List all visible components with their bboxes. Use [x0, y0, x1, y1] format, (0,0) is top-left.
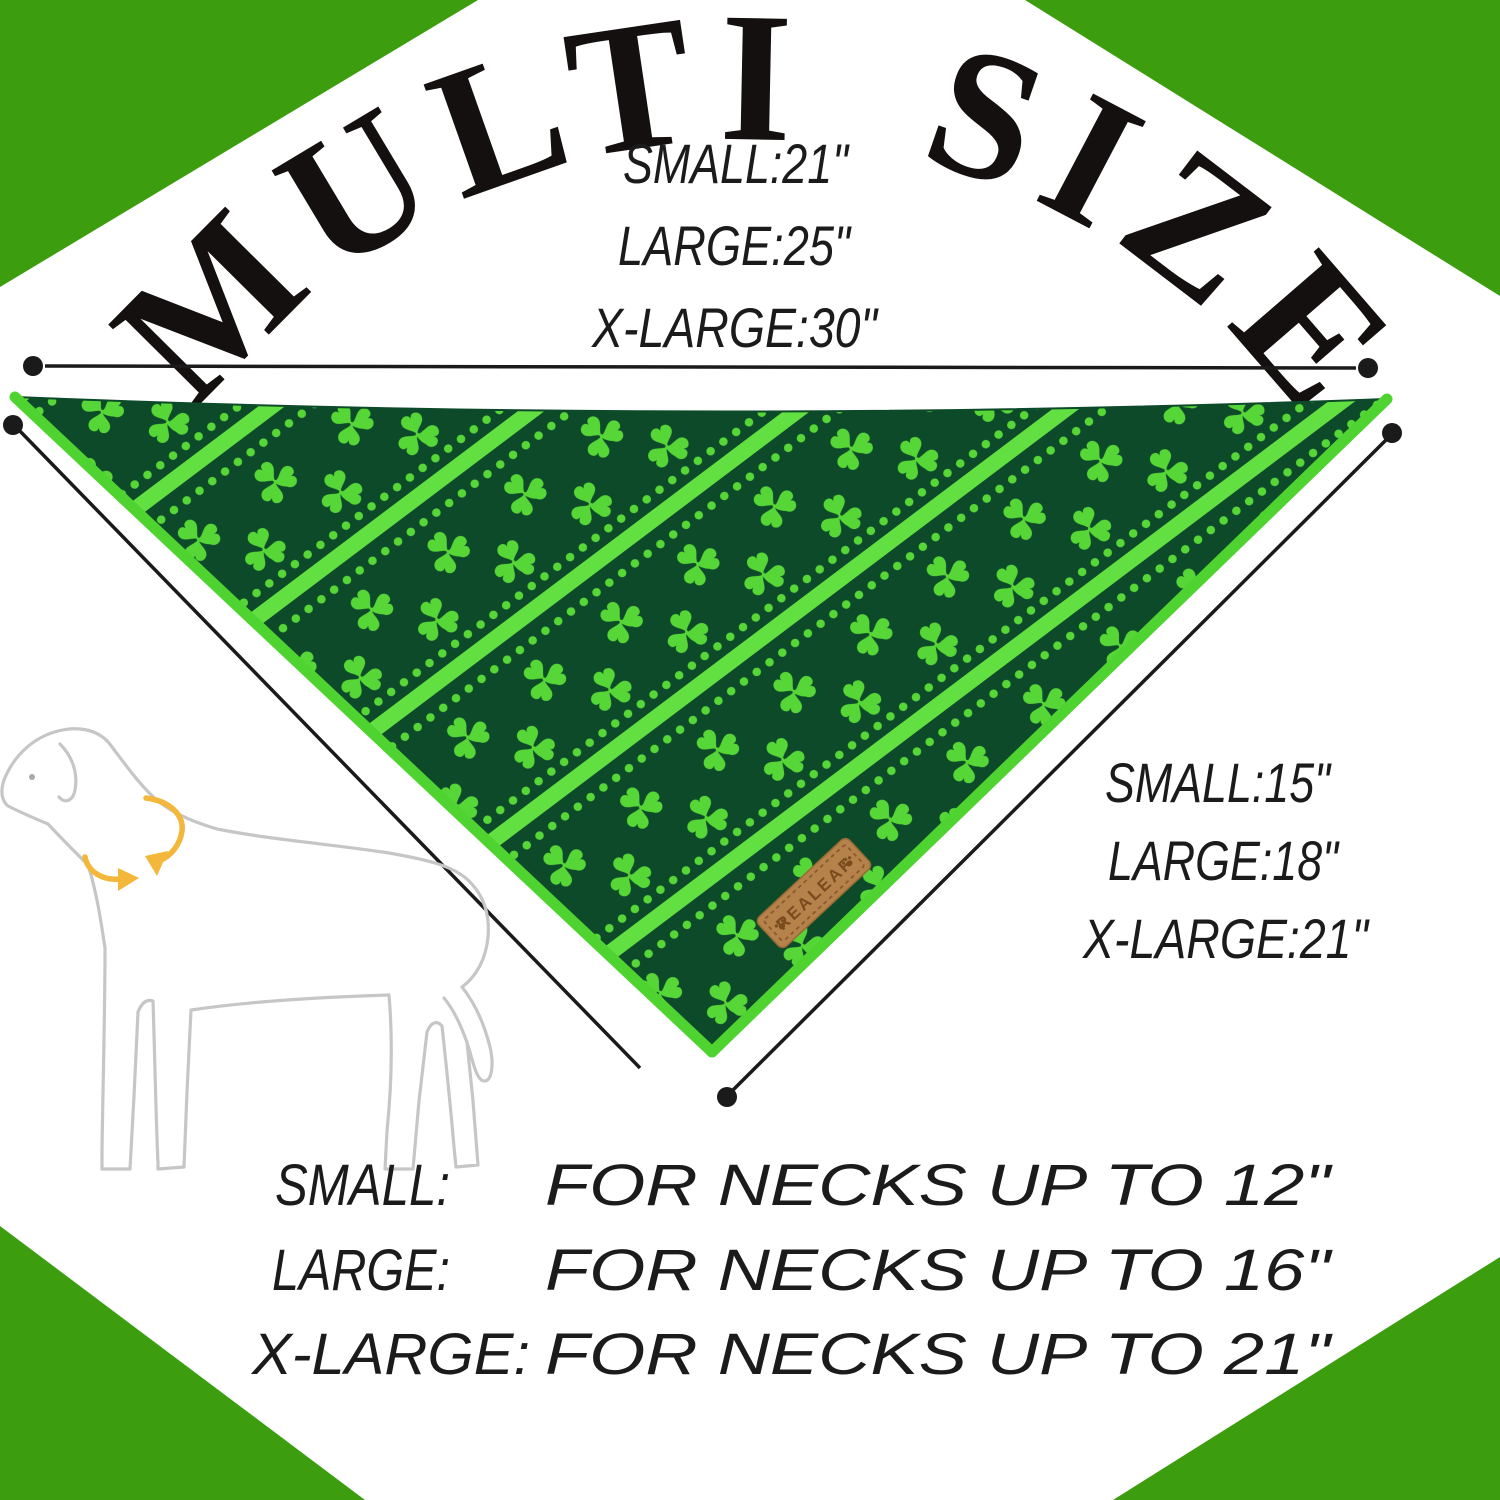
neck-fit-desc-large: FOR NECKS UP TO 16" [545, 1238, 1333, 1303]
top-size-large: LARGE:25" [618, 214, 852, 277]
top-size-small: SMALL:21" [623, 132, 850, 195]
measure-dot-icon [1358, 358, 1378, 378]
measure-line-top [45, 366, 1356, 368]
neck-fit-chart: SMALL: FOR NECKS UP TO 12" LARGE: FOR NE… [250, 1153, 1333, 1387]
neck-fit-label-xlarge: X-LARGE: [250, 1322, 530, 1387]
measure-dot-icon [717, 1087, 737, 1107]
top-size-xlarge: X-LARGE:30" [590, 296, 878, 359]
neck-fit-desc-xlarge: FOR NECKS UP TO 21" [545, 1322, 1333, 1387]
product-size-infographic: MULTI SIZE SMALL:21" LARGE:25" X-LARGE:3… [0, 0, 1500, 1500]
edge-size-large: LARGE:18" [1108, 829, 1340, 892]
edge-size-xlarge: X-LARGE:21" [1081, 907, 1369, 970]
edge-size-small: SMALL:15" [1105, 751, 1332, 814]
dog-eye [29, 774, 35, 780]
neck-fit-label-large: LARGE: [272, 1238, 450, 1303]
neck-fit-desc-small: FOR NECKS UP TO 12" [545, 1153, 1333, 1218]
measure-dot-icon [1382, 423, 1402, 443]
measure-dot-icon [23, 356, 43, 376]
edge-size-chart: SMALL:15" LARGE:18" X-LARGE:21" [1081, 751, 1369, 970]
neck-fit-label-small: SMALL: [275, 1153, 450, 1218]
measure-dot-icon [3, 415, 23, 435]
top-size-chart: SMALL:21" LARGE:25" X-LARGE:30" [590, 132, 878, 359]
